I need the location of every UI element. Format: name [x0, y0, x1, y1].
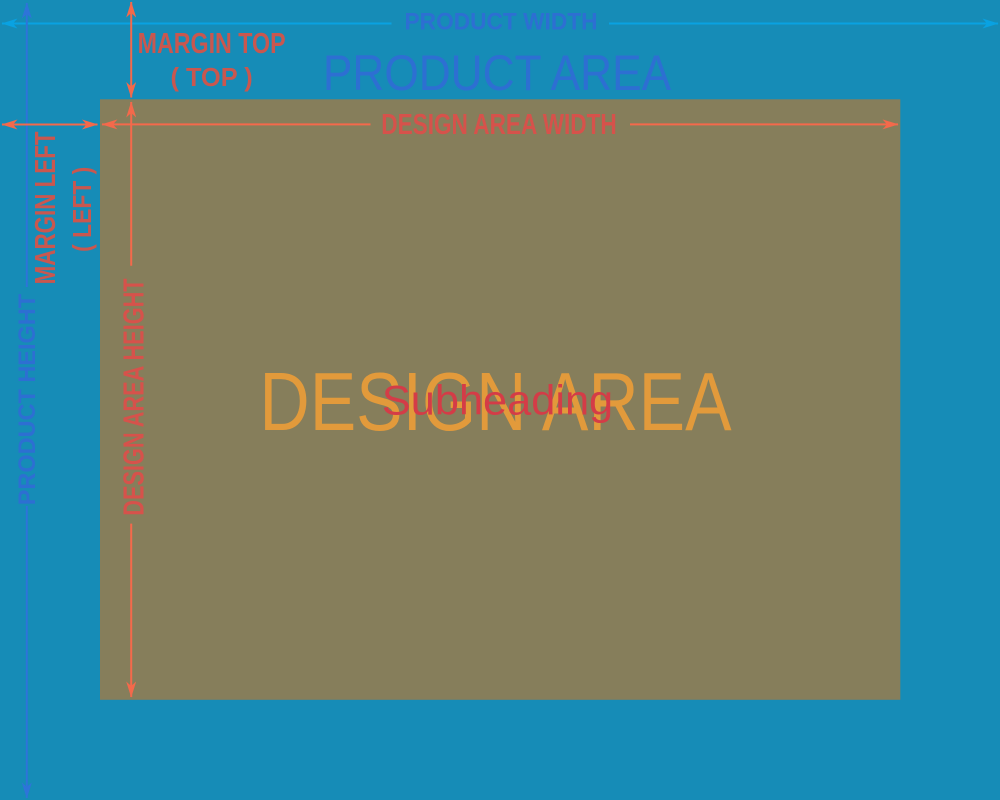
svg-text:PRODUCT AREA: PRODUCT AREA: [323, 46, 672, 102]
svg-text:DESIGN AREA WIDTH: DESIGN AREA WIDTH: [381, 107, 616, 140]
svg-text:MARGIN LEFT: MARGIN LEFT: [30, 131, 61, 284]
svg-text:MARGIN TOP: MARGIN TOP: [138, 27, 286, 60]
svg-text:DESIGN AREA HEIGHT: DESIGN AREA HEIGHT: [119, 278, 151, 516]
svg-text:PRODUCT WIDTH: PRODUCT WIDTH: [405, 8, 598, 35]
svg-text:Subheading: Subheading: [382, 377, 613, 424]
svg-text:( TOP ): ( TOP ): [171, 64, 253, 92]
svg-text:( LEFT ): ( LEFT ): [69, 167, 98, 252]
svg-text:PRODUCT HEIGHT: PRODUCT HEIGHT: [15, 293, 41, 505]
